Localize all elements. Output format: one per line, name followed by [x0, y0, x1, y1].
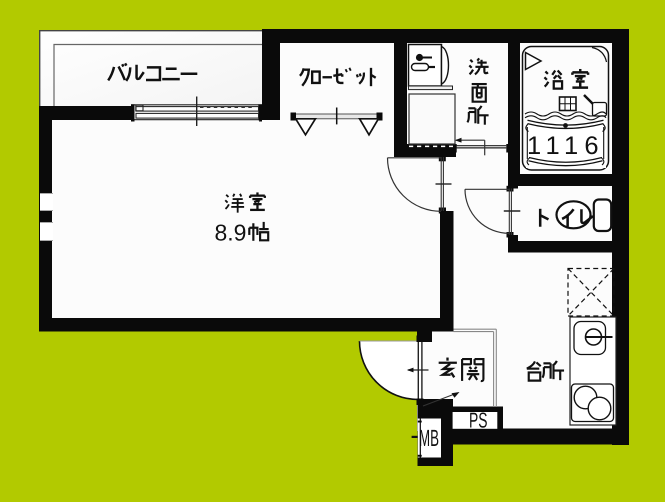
- svg-text:PS: PS: [469, 409, 488, 433]
- svg-text:8.9: 8.9: [215, 220, 247, 246]
- svg-text:MB: MB: [419, 425, 439, 451]
- svg-text:1116: 1116: [527, 132, 605, 160]
